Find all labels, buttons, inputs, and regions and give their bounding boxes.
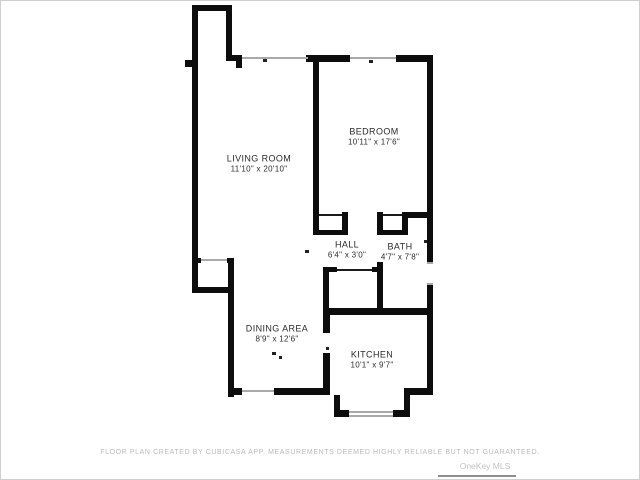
room-label-bedroom: BEDROOM 10'11" x 17'6": [348, 126, 400, 149]
wall: [228, 388, 242, 395]
door-marker: [369, 60, 373, 63]
window: [201, 259, 227, 261]
room-dimensions: 10'1" x 9'7": [350, 361, 393, 372]
mls-watermark: OneKey MLS: [452, 461, 518, 471]
door-jamb: [185, 60, 192, 67]
closet-door: [337, 269, 372, 271]
room-dimensions: 4'7" x 7'8": [381, 253, 419, 264]
wall: [274, 388, 330, 395]
wall: [404, 395, 410, 415]
wall: [404, 388, 433, 395]
wall: [313, 230, 348, 235]
wall: [323, 353, 330, 390]
room-name: HALL: [328, 239, 366, 251]
wall: [408, 212, 433, 218]
window: [350, 57, 396, 59]
room-label-kitchen: KITCHEN 10'1" x 9'7": [350, 349, 393, 372]
room-label-hall: HALL 6'4" x 3'0": [328, 239, 366, 262]
floor-plan-image: LIVING ROOM 11'10" x 20'10" BEDROOM 10'1…: [0, 0, 640, 480]
wall: [323, 308, 433, 315]
wall: [427, 285, 433, 395]
room-name: BEDROOM: [348, 126, 400, 138]
window: [242, 390, 274, 392]
window: [349, 415, 393, 417]
window: [242, 57, 308, 59]
room-label-living-room: LIVING ROOM 11'10" x 20'10": [227, 153, 291, 176]
door-marker: [272, 352, 276, 355]
room-dimensions: 8'9" x 12'6": [246, 335, 308, 346]
door-marker: [326, 347, 329, 350]
window: [427, 262, 433, 264]
closet-door: [319, 214, 342, 216]
room-dimensions: 10'11" x 17'6": [348, 138, 400, 149]
room-name: KITCHEN: [350, 349, 393, 361]
door-marker: [263, 59, 267, 62]
closet-door: [383, 214, 402, 216]
room-dimensions: 11'10" x 20'10": [227, 165, 291, 176]
wall: [226, 5, 232, 61]
wall: [427, 55, 433, 262]
door-marker: [424, 240, 427, 243]
wall: [323, 315, 330, 333]
door-marker: [279, 356, 282, 359]
wall: [192, 5, 198, 293]
wall: [192, 258, 201, 263]
room-label-bath: BATH 4'7" x 7'8": [381, 241, 419, 264]
room-name: BATH: [381, 241, 419, 253]
wall: [313, 55, 319, 235]
disclaimer-text: FLOOR PLAN CREATED BY CUBICASA APP. MEAS…: [0, 449, 640, 456]
window: [349, 411, 393, 413]
wall: [372, 267, 383, 272]
wall: [228, 258, 234, 397]
door-marker: [305, 250, 309, 253]
room-name: LIVING ROOM: [227, 153, 291, 165]
room-label-dining-area: DINING AREA 8'9" x 12'6": [246, 323, 308, 346]
watermark-divider: [438, 475, 516, 477]
room-name: DINING AREA: [246, 323, 308, 335]
room-dimensions: 6'4" x 3'0": [328, 251, 366, 262]
window: [427, 283, 433, 285]
wall: [377, 230, 408, 235]
wall: [334, 410, 349, 417]
